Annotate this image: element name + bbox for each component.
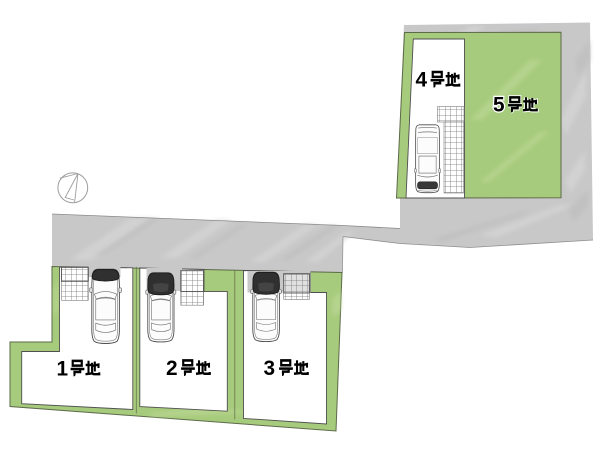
svg-text:3: 3 <box>264 357 276 380</box>
svg-text:2: 2 <box>166 357 178 380</box>
svg-text:1: 1 <box>57 358 69 381</box>
svg-text:5: 5 <box>493 93 505 116</box>
svg-text:4: 4 <box>416 68 428 91</box>
